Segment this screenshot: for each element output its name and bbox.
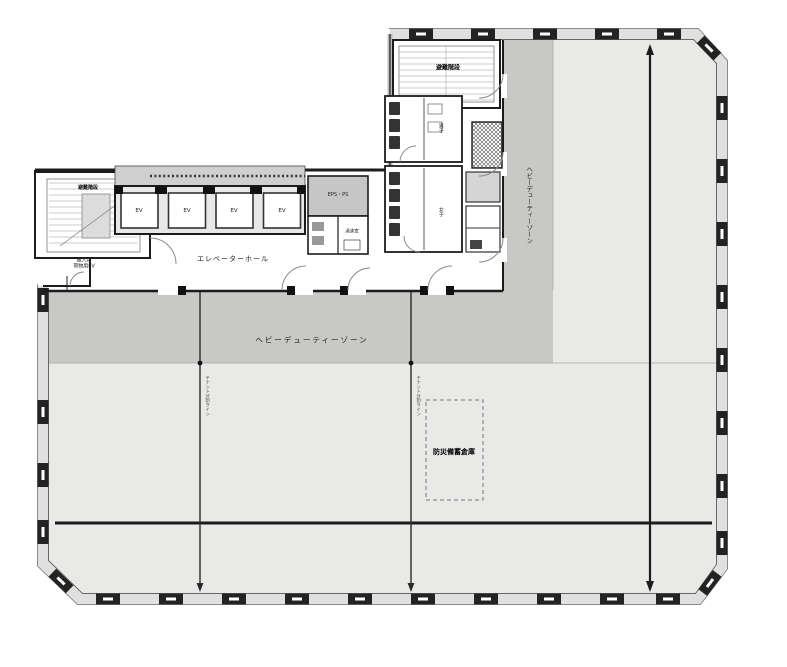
elevator-1-label: EV bbox=[135, 208, 142, 214]
shaft-grille bbox=[466, 122, 502, 252]
eps-pantry-block bbox=[308, 176, 368, 254]
elevator-2-label: EV bbox=[183, 208, 190, 214]
heavy-duty-zone-east-label: ヘビーデューティーゾーン bbox=[524, 166, 531, 244]
floor-plan: エレベーターホール EV EV EV EV 避難階段 避難階段 EPS・PS 湯… bbox=[0, 0, 787, 667]
eps-label: EPS・PS bbox=[328, 193, 349, 199]
delivery-note: 搬入用 荷物用EV bbox=[73, 258, 95, 270]
storage-label: 防災備蓄倉庫 bbox=[433, 448, 475, 456]
delivery-note-line2: 荷物用EV bbox=[73, 264, 95, 270]
stair-west-label: 避難階段 bbox=[78, 186, 98, 192]
elevator-bank bbox=[115, 166, 305, 234]
heavy-duty-zone-south bbox=[49, 290, 553, 363]
split-line-east-label: テナント分割ライン bbox=[415, 376, 420, 417]
kitchenette-label: 湯沸室 bbox=[345, 229, 359, 234]
wc-men-label: 男子 bbox=[437, 123, 443, 133]
toilet-block bbox=[385, 96, 462, 252]
elevator-3-label: EV bbox=[230, 208, 237, 214]
wc-women-label: 女子 bbox=[437, 207, 443, 217]
heavy-duty-zone-south-label: ヘビーデューティーゾーン bbox=[255, 337, 368, 346]
elevator-4-label: EV bbox=[278, 208, 285, 214]
split-line-west-label: テナント分割ライン bbox=[204, 376, 209, 417]
heavy-duty-zone-east bbox=[502, 40, 553, 290]
floor-plan-drawing bbox=[0, 0, 787, 667]
tenant-zones bbox=[49, 40, 716, 593]
elevator-hall-label: エレベーターホール bbox=[197, 255, 269, 263]
stair-north-label: 避難階段 bbox=[436, 66, 460, 73]
